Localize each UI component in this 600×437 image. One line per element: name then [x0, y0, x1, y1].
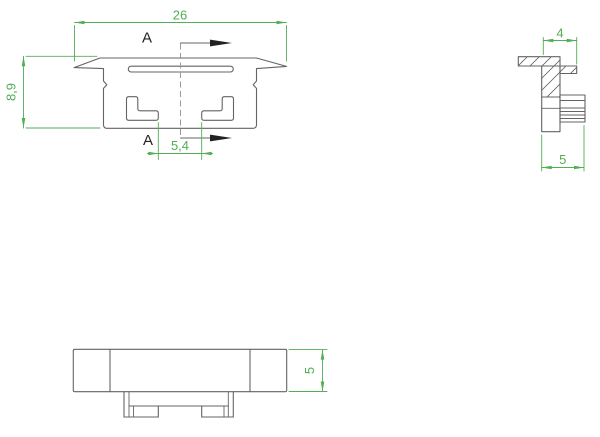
- technical-drawing: A A 26 8,9: [0, 0, 600, 437]
- ribbed-plug: [560, 95, 585, 122]
- dim-value-side-depth: 5: [559, 152, 566, 167]
- section-profile-view: A A 26 8,9: [4, 8, 287, 160]
- dim-arrow-icon: [277, 21, 287, 25]
- left-hook-outline: [127, 97, 159, 121]
- section-letter-top: A: [142, 30, 152, 47]
- plug-outline: [560, 95, 585, 122]
- drawing-svg: A A 26 8,9: [0, 0, 600, 437]
- front-insert-protrusion: [124, 392, 233, 417]
- dim-value-width: 26: [173, 8, 187, 23]
- flange-section: [518, 57, 560, 66]
- dim-arrow-icon: [321, 382, 325, 392]
- front-elevation-view: 5: [73, 349, 327, 417]
- dim-value-side-width: 4: [556, 26, 563, 41]
- dim-value-height: 8,9: [4, 83, 19, 101]
- dimension-side-5: 5: [542, 126, 584, 172]
- front-body-outline: [73, 349, 286, 391]
- dimension-width-26: 26: [75, 8, 287, 62]
- dimension-height-8-9: 8,9: [4, 56, 101, 128]
- dimension-front-5: 5: [289, 350, 327, 392]
- dim-arrow-icon: [574, 166, 584, 170]
- section-arrow-icon: [210, 40, 232, 47]
- dim-arrow-icon: [567, 39, 577, 43]
- dim-arrow-icon: [22, 56, 26, 66]
- dim-arrow-icon: [148, 152, 158, 156]
- dim-value-front-height: 5: [302, 367, 317, 374]
- dim-arrow-icon: [202, 152, 212, 156]
- dim-arrow-icon: [543, 39, 553, 43]
- right-hook-outline: [202, 97, 234, 121]
- section-hatching: [486, 52, 600, 98]
- dim-arrow-icon: [22, 118, 26, 128]
- side-section-view: 4 5: [486, 26, 600, 172]
- section-marker-top: A: [142, 30, 232, 47]
- dim-arrow-icon: [542, 166, 552, 170]
- dim-value-slot: 5,4: [171, 138, 189, 153]
- dim-arrow-icon: [321, 350, 325, 360]
- dim-arrow-icon: [75, 21, 85, 25]
- section-letter-bottom: A: [143, 132, 153, 149]
- section-arrow-icon: [210, 135, 232, 142]
